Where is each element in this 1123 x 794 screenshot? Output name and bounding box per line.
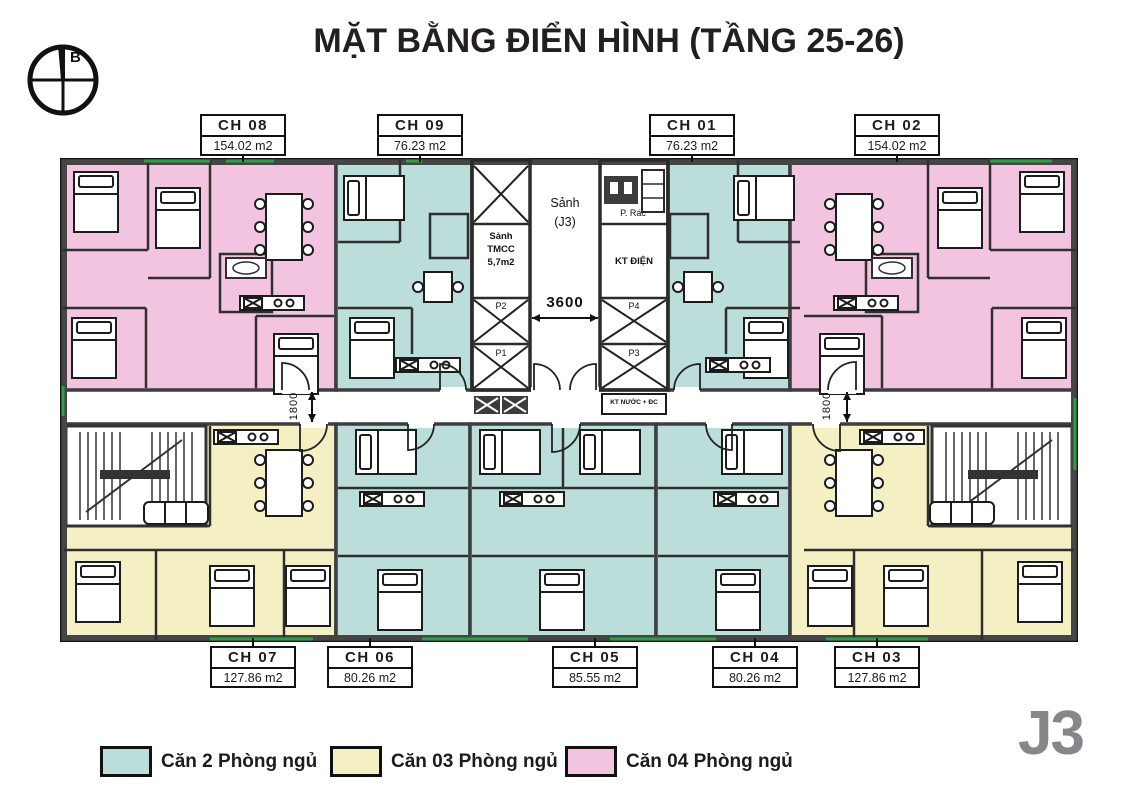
service-lobby-line1: Sảnh [472, 230, 530, 243]
dimension-1800-left-value: 1800 [288, 392, 300, 420]
apartment-callout-ch01: CH 01 76.23 m2 [649, 114, 735, 162]
legend-swatch-3br [330, 746, 382, 777]
apartment-id: CH 03 [836, 648, 918, 669]
legend-label-4br: Căn 04 Phòng ngủ [626, 751, 793, 773]
legend-swatch-4br [565, 746, 617, 777]
floor-plan-page: B MẶT BẰNG ĐIỂN HÌNH (TẦNG 25-26) [0, 0, 1123, 794]
apartment-callout-ch09: CH 09 76.23 m2 [377, 114, 463, 162]
apartment-id: CH 06 [329, 648, 411, 669]
legend-item-2br: Căn 2 Phòng ngủ [100, 746, 317, 777]
elevator-p2-label: P2 [472, 301, 530, 312]
legend-label-2br: Căn 2 Phòng ngủ [161, 751, 317, 773]
leader-line [754, 638, 757, 646]
apartment-area: 80.26 m2 [329, 669, 411, 686]
apartment-area: 80.26 m2 [714, 669, 796, 686]
apartment-id: CH 01 [651, 116, 733, 137]
apartment-id: CH 02 [856, 116, 938, 137]
leader-line [876, 638, 879, 646]
leader-line [419, 156, 422, 162]
water-tech-label: KT NƯỚC + ĐC [603, 399, 665, 407]
apartment-callout-ch07: CH 07 127.86 m2 [210, 638, 296, 688]
lobby-block: (J3) [528, 213, 602, 232]
service-lobby-line2: TMCC [472, 243, 530, 256]
elevator-p4-label: P4 [600, 301, 668, 312]
apartment-area: 85.55 m2 [554, 669, 636, 686]
service-lobby-line3: 5,7m2 [472, 256, 530, 269]
apartment-callout-ch08: CH 08 154.02 m2 [200, 114, 286, 162]
floor-plan: Sảnh (J3) Sảnh TMCC 5,7m2 P. Rác KT ĐIỆN… [60, 158, 1078, 642]
lobby-name: Sảnh [528, 194, 602, 213]
apartment-callout-ch02: CH 02 154.02 m2 [854, 114, 940, 162]
legend-swatch-2br [100, 746, 152, 777]
apartment-callout-ch06: CH 06 80.26 m2 [327, 638, 413, 688]
apartment-id: CH 07 [212, 648, 294, 669]
dimension-1800-left: 1800 [277, 390, 311, 422]
apartment-area: 76.23 m2 [651, 137, 733, 154]
leader-line [896, 156, 899, 162]
dimension-1800-right-value: 1800 [821, 392, 833, 420]
apartment-id: CH 05 [554, 648, 636, 669]
trash-room-label: P. Rác [600, 208, 666, 219]
service-lobby-label: Sảnh TMCC 5,7m2 [472, 230, 530, 269]
elevator-p3-label: P3 [600, 348, 668, 359]
leader-line [594, 638, 597, 646]
apartment-area: 127.86 m2 [212, 669, 294, 686]
page-title: MẶT BẰNG ĐIỂN HÌNH (TẦNG 25-26) [0, 22, 1123, 61]
apartment-id: CH 09 [379, 116, 461, 137]
apartment-callout-ch04: CH 04 80.26 m2 [712, 638, 798, 688]
apartment-id: CH 04 [714, 648, 796, 669]
leader-line [242, 156, 245, 162]
apartment-area: 154.02 m2 [856, 137, 938, 154]
dimension-3600: 3600 [528, 294, 602, 313]
leader-line [691, 156, 694, 162]
apartment-area: 76.23 m2 [379, 137, 461, 154]
apartment-area: 154.02 m2 [202, 137, 284, 154]
leader-line [369, 638, 372, 646]
apartment-area: 127.86 m2 [836, 669, 918, 686]
dimension-1800-right: 1800 [810, 390, 844, 422]
apartment-callout-ch05: CH 05 85.55 m2 [552, 638, 638, 688]
building-code-logo: J3 [1018, 698, 1083, 769]
apartment-callout-ch03: CH 03 127.86 m2 [834, 638, 920, 688]
legend-item-4br: Căn 04 Phòng ngủ [565, 746, 793, 777]
legend-label-3br: Căn 03 Phòng ngủ [391, 751, 558, 773]
leader-line [252, 638, 255, 646]
corridor [64, 392, 1074, 422]
legend-item-3br: Căn 03 Phòng ngủ [330, 746, 558, 777]
apartment-id: CH 08 [202, 116, 284, 137]
electrical-room-label: KT ĐIỆN [600, 256, 668, 268]
elevator-p1-label: P1 [472, 348, 530, 359]
lobby-label: Sảnh (J3) [528, 194, 602, 232]
